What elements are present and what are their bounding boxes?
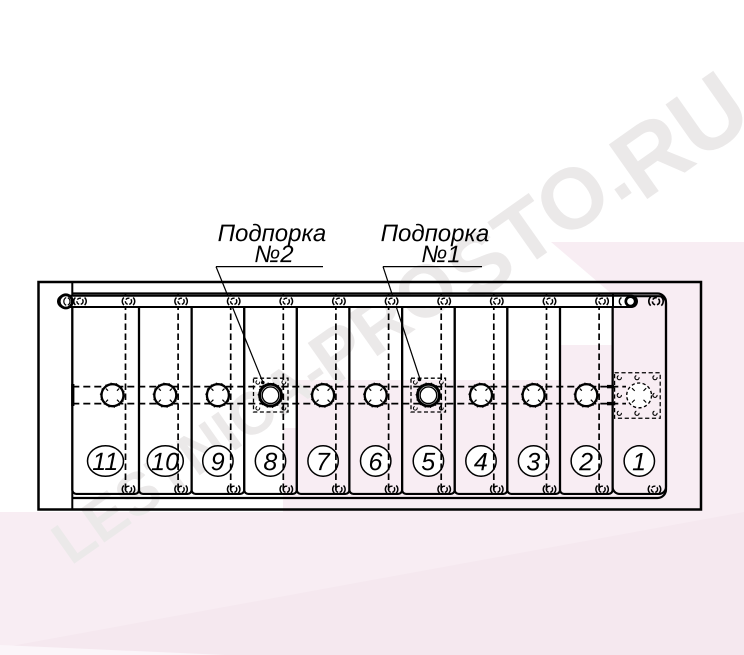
svg-text:№2: №2 — [254, 241, 293, 268]
svg-text:10: 10 — [151, 448, 179, 476]
svg-text:3: 3 — [526, 448, 540, 476]
svg-text:7: 7 — [316, 448, 331, 476]
svg-text:8: 8 — [263, 448, 277, 476]
svg-text:4: 4 — [474, 448, 488, 476]
svg-text:1: 1 — [632, 448, 646, 476]
svg-text:6: 6 — [369, 448, 383, 476]
svg-text:11: 11 — [92, 448, 118, 476]
svg-text:2: 2 — [578, 448, 593, 476]
svg-text:9: 9 — [211, 448, 225, 476]
svg-text:№1: №1 — [421, 241, 460, 268]
svg-text:5: 5 — [421, 448, 435, 476]
